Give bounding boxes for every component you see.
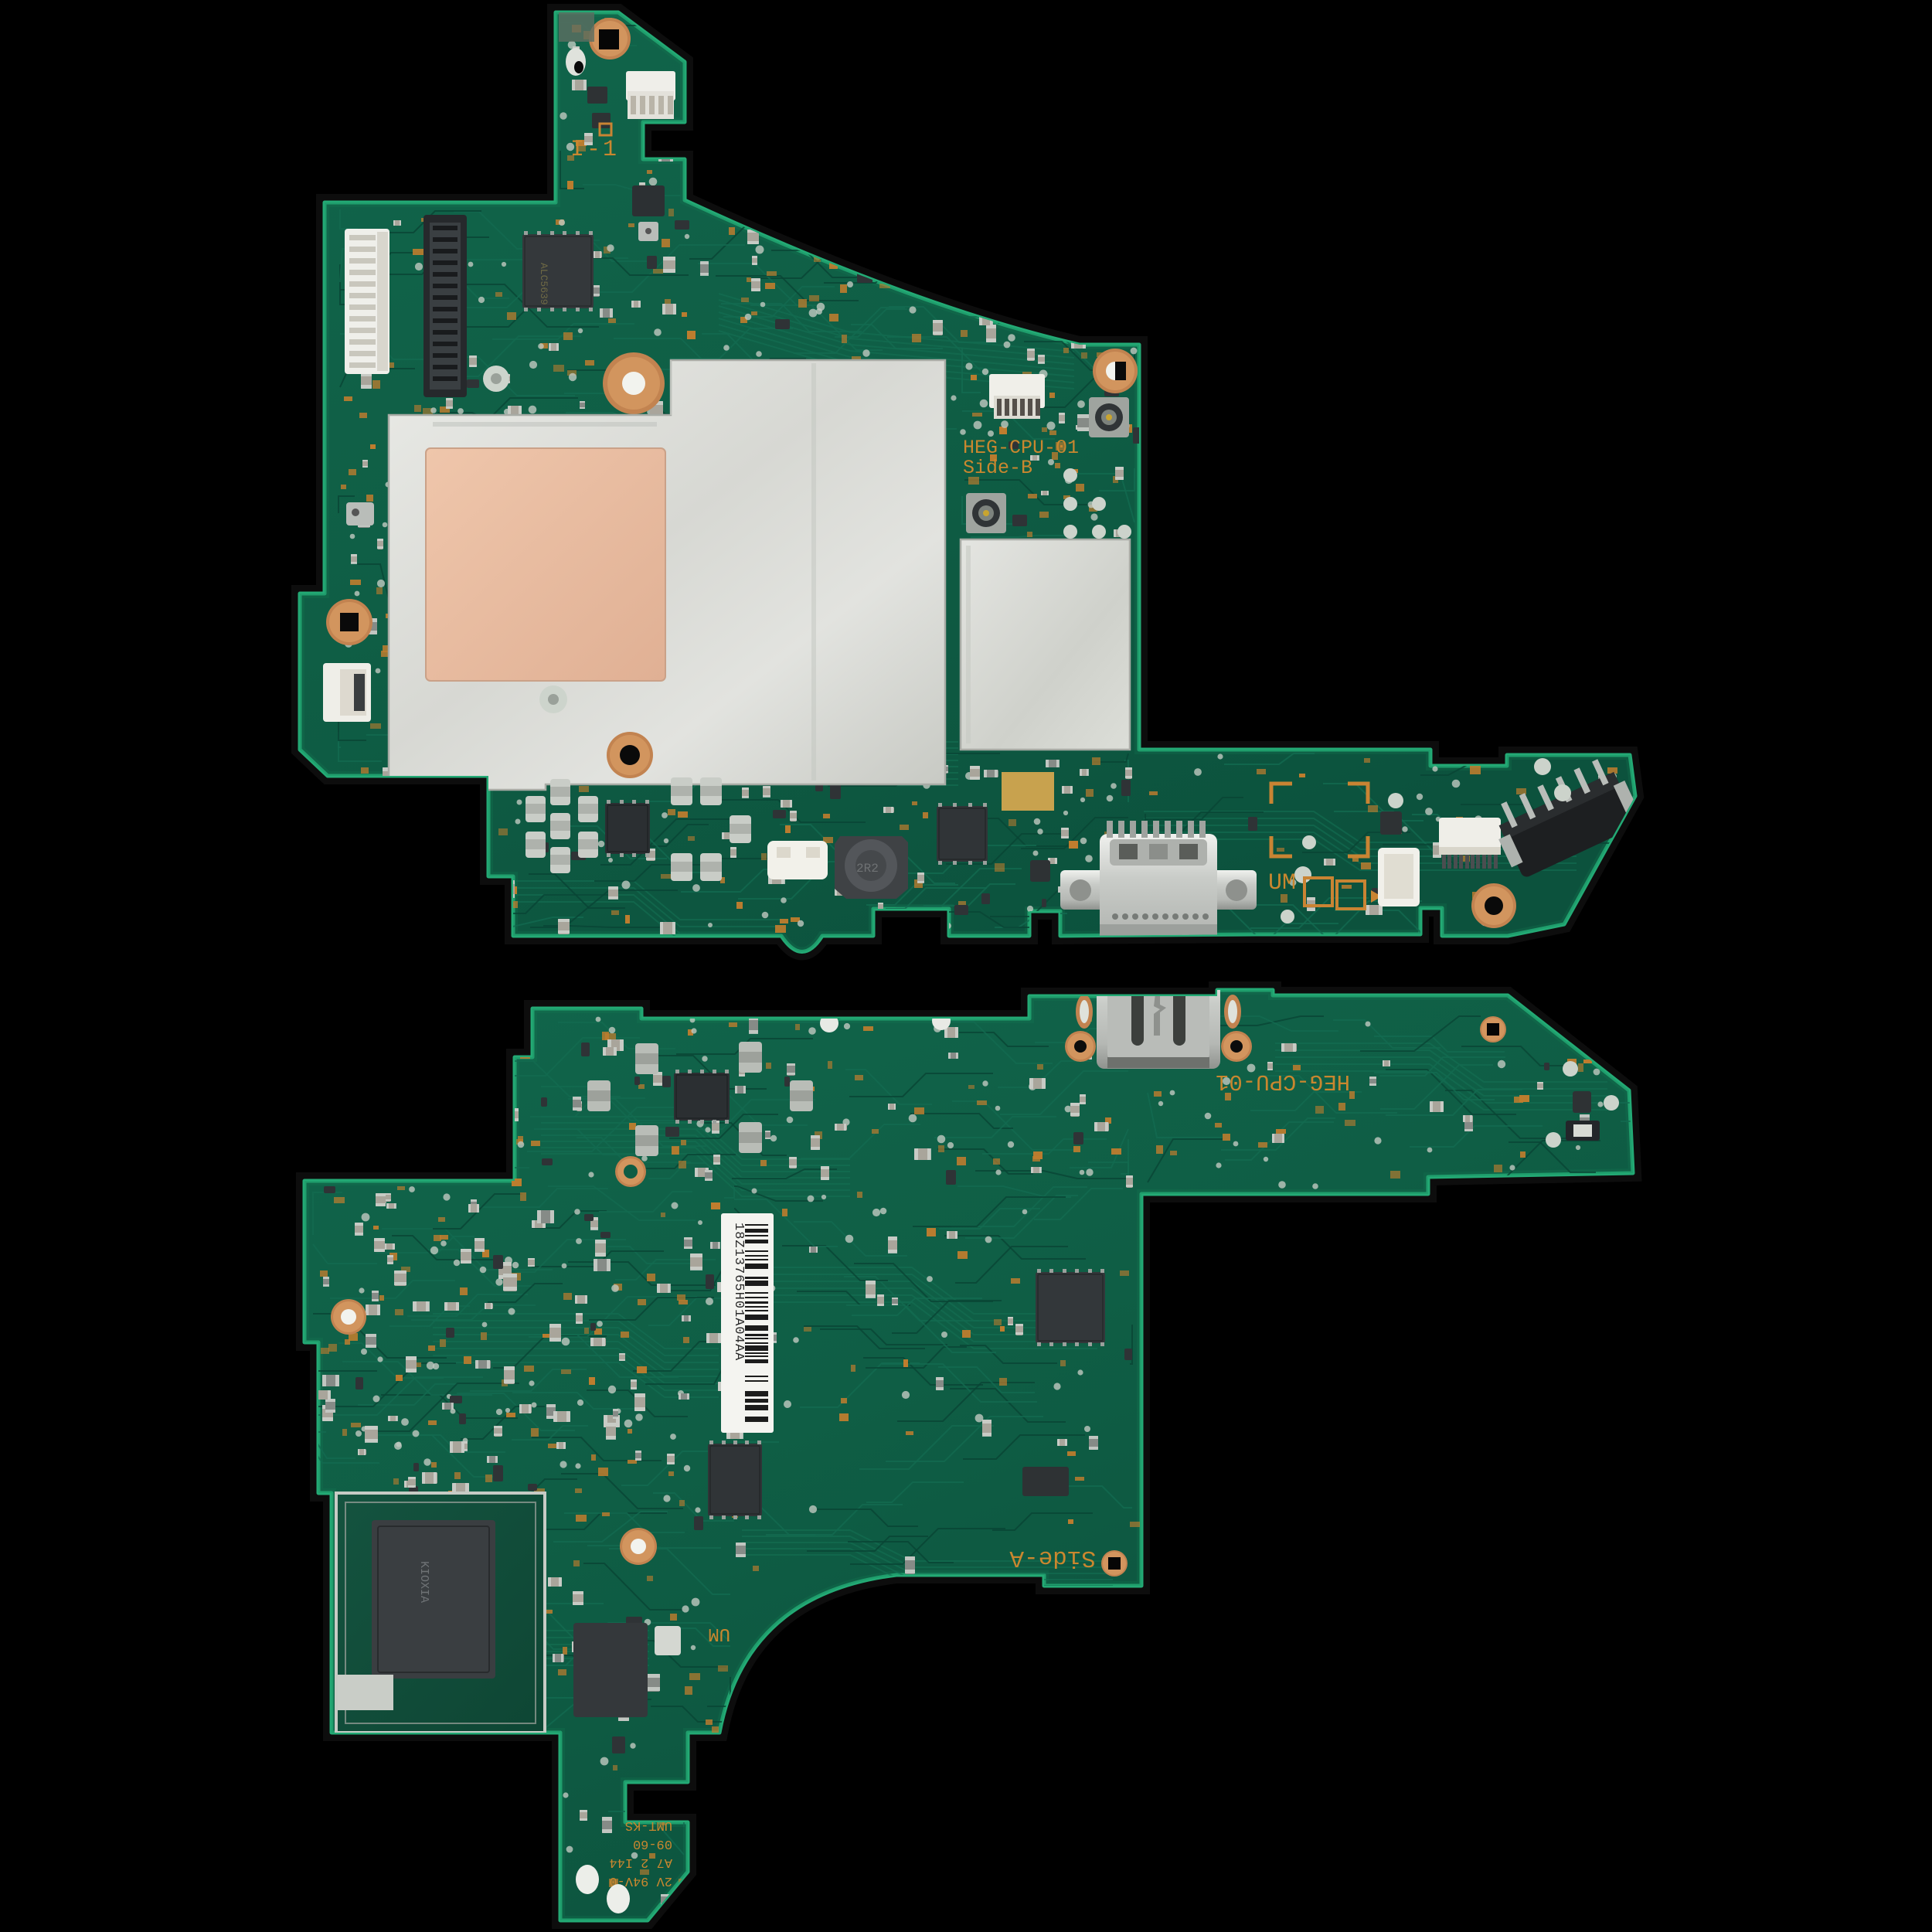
svg-text:18Z13765H01A04AA: 18Z13765H01A04AA <box>731 1223 746 1361</box>
svg-text:KIOXIA: KIOXIA <box>417 1561 430 1603</box>
svg-text:09-60: 09-60 <box>633 1836 672 1851</box>
svg-text:Side-B: Side-B <box>963 457 1032 479</box>
svg-text:Side-A: Side-A <box>1009 1544 1096 1571</box>
svg-text:A7 2 I44: A7 2 I44 <box>609 1855 672 1869</box>
svg-text:HEG-CPU-01: HEG-CPU-01 <box>1216 1069 1350 1094</box>
svg-text:ALC5639: ALC5639 <box>538 263 549 305</box>
svg-text:2R2: 2R2 <box>856 862 879 876</box>
svg-text:I-1: I-1 <box>570 137 619 163</box>
svg-text:UM: UM <box>1268 870 1296 896</box>
svg-text:UM: UM <box>708 1623 730 1644</box>
svg-text:HEG-CPU-01: HEG-CPU-01 <box>963 437 1079 459</box>
